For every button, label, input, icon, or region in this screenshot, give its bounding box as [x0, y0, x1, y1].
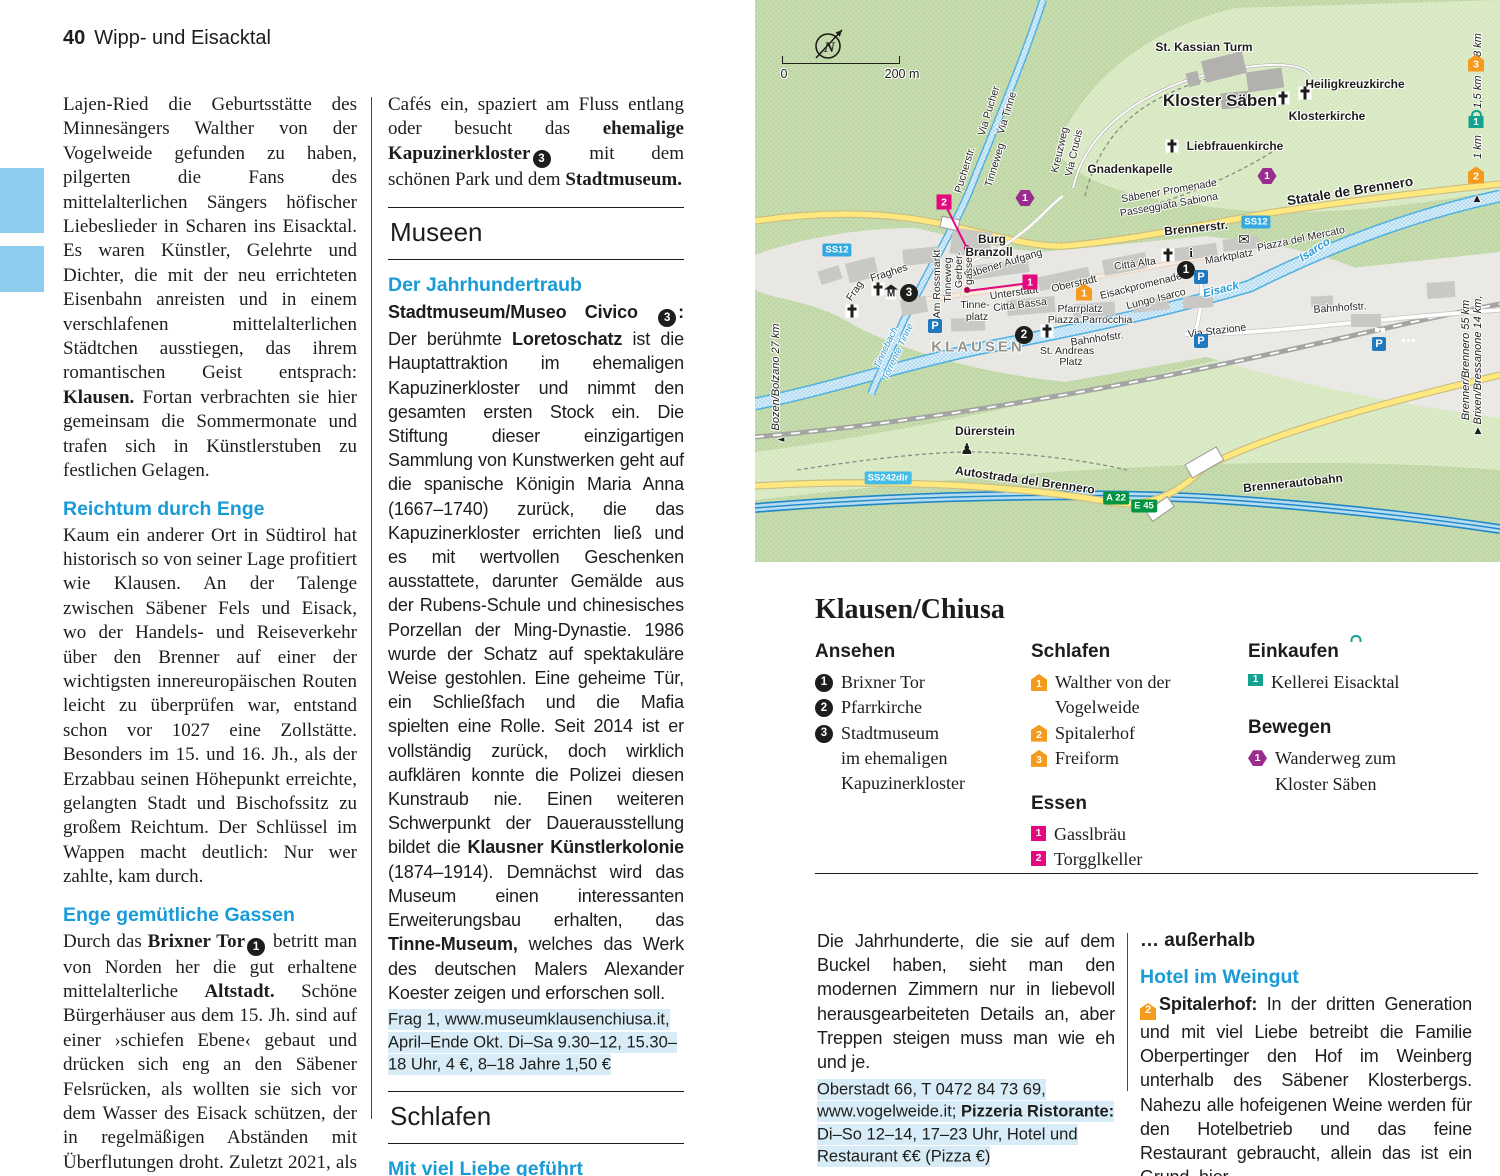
sight-marker-1: 1	[1177, 261, 1195, 279]
practical-info: Oberstadt 66, T 0472 84 73 69, www.vogel…	[817, 1078, 1115, 1168]
cross-icon	[872, 283, 885, 296]
page-number: 40	[63, 27, 85, 49]
restaurant-marker-2: 2	[937, 195, 952, 210]
paragraph: 2Spitalerhof: In der dritten Generation …	[1140, 992, 1472, 1176]
legend-title: Klausen/Chiusa	[815, 594, 1005, 626]
arrow-left-icon: ◄	[778, 435, 785, 445]
scale-distance-label: 200 m	[885, 67, 920, 81]
road-badge-SS242dir: SS242dir	[865, 472, 912, 485]
paragraph: Durch das Brixner Tor1 betritt man von N…	[63, 930, 357, 1176]
map-label: gasse	[963, 257, 975, 285]
map-label: Marktplatz	[1204, 247, 1254, 267]
map-label: Bahnhofstr.	[1313, 300, 1367, 316]
road-badge-E45: E 45	[1131, 500, 1157, 513]
town-map-klausen: N St. Kassian TurmKloster SäbenHeiligkre…	[755, 0, 1500, 562]
map-label: Tinneweg	[942, 257, 954, 302]
legend-item-label: Spitalerhof	[1055, 721, 1135, 746]
emphasis-text: Stadtmuseum.	[565, 169, 682, 190]
restaurant-marker-1: 1	[1031, 826, 1046, 841]
blue-subheading: Reichtum durch Enge	[63, 498, 357, 521]
practical-info: Frag 1, www.museumklausenchiusa.it, Apri…	[388, 1009, 684, 1077]
legend-item-label: Kellerei Eisacktal	[1271, 670, 1399, 695]
map-label: Bozen/Bolzano 27 km	[770, 323, 782, 430]
legend-section: Schlafen1Walther von derVogelweide2Spita…	[1031, 641, 1246, 771]
map-label: Tinne-	[960, 299, 989, 311]
scale-zero-label: 0	[781, 67, 788, 81]
article-column-left: Lajen-Ried die Geburtsstätte des Minnesä…	[63, 93, 357, 1176]
sight-badge-3: 3	[658, 309, 676, 327]
map-label: 1,5 km	[1472, 75, 1484, 108]
legend-section-header: Bewegen	[1248, 717, 1463, 739]
legend-item: 1Wanderweg zumKloster Säben	[1248, 746, 1463, 797]
legend-section: Bewegen1Wanderweg zumKloster Säben	[1248, 717, 1463, 797]
map-label: Città Alta	[1113, 255, 1156, 273]
guidebook-page: 40Wipp- und Eisacktal Lajen-Ried die Geb…	[0, 0, 1500, 1176]
emphasis-text: Brixner Tor	[148, 931, 245, 952]
sight-marker-2: 2	[1015, 326, 1033, 344]
legend-item: 1Kellerei Eisacktal	[1248, 670, 1463, 695]
legend-section: Einkaufen1Kellerei Eisacktal	[1248, 641, 1463, 695]
paragraph: Kaum ein anderer Ort in Südtirol hat his…	[63, 524, 357, 890]
emphasis-text: Spitalerhof:	[1159, 994, 1257, 1014]
map-label: KLAUSEN	[931, 339, 1025, 356]
blue-subheading: Der Jahrhundertraub	[388, 274, 684, 297]
map-label: St. Kassian Turm	[1155, 40, 1252, 54]
legend-item-label: Torgglkeller	[1054, 847, 1142, 872]
paragraph: Die Jahrhunderte, die sie auf dem Buckel…	[817, 929, 1115, 1074]
trail-marker-1: 1	[1248, 750, 1267, 766]
parking-marker-P: P	[1194, 270, 1208, 284]
legend-column-2: Einkaufen1Kellerei EisacktalBewegen1Wand…	[1248, 641, 1463, 819]
shop-marker-1: 1	[1248, 674, 1263, 686]
map-label: Liebfrauenkirche	[1187, 139, 1284, 153]
bottom-column-right: … außerhalbHotel im Weingut2Spitalerhof:…	[1140, 929, 1472, 1176]
section-heading: Museen	[388, 207, 684, 260]
parking-marker-P: P	[1372, 337, 1386, 351]
legend-item-label: Pfarrkirche	[841, 695, 922, 720]
blue-subheading: Enge gemütliche Gassen	[63, 904, 357, 927]
map-label: Brennerstr.	[1163, 218, 1228, 239]
map-label: Piazza Parrocchia	[1048, 314, 1133, 326]
legend-item-label: Wanderweg zumKloster Säben	[1275, 746, 1396, 797]
legend-item-label: Stadtmuseumim ehemaligenKapuzinerkloster	[841, 721, 965, 797]
map-label: Frag	[844, 279, 866, 304]
legend-item-label: Gasslbräu	[1054, 822, 1126, 847]
cross-icon	[846, 305, 859, 318]
arrow-up-icon: ▲	[1475, 426, 1482, 436]
legend-section-header: Essen	[1031, 793, 1246, 815]
sight-marker-1: 1	[815, 674, 833, 692]
column-divider	[371, 97, 372, 1119]
paragraph: Lajen-Ried die Geburtsstätte des Minnesä…	[63, 93, 357, 484]
bold-subheading: … außerhalb	[1140, 929, 1472, 952]
mail-icon: ✉	[1238, 232, 1250, 248]
section-heading: Schlafen	[388, 1091, 684, 1144]
emphasis-text: Stadtmuseum/Museo Civico	[388, 302, 656, 322]
body-text: Die Jahrhunderte, die sie auf dem Buckel…	[817, 931, 1115, 1072]
map-label: platz	[966, 311, 988, 323]
map-label: Heiligkreuzkirche	[1305, 77, 1404, 91]
parking-marker-P: P	[928, 319, 942, 333]
legend-section-header: Ansehen	[815, 641, 1030, 663]
body-text: Durch das	[63, 931, 148, 952]
cross-icon	[1162, 249, 1175, 262]
hotel-marker-3: 3	[1031, 750, 1047, 767]
trail-marker-1: 1	[1258, 168, 1277, 184]
paragraph: Stadtmuseum/Museo Civico 3: Der berühmte…	[388, 300, 684, 1005]
body-text: (1874–1914). Demnächst wird das Museum e…	[388, 862, 684, 930]
hotel-marker-2: 2	[1468, 167, 1484, 184]
legend-divider-rule	[815, 873, 1478, 874]
map-label: 8 km	[1472, 33, 1484, 57]
legend-item: 2Torgglkeller	[1031, 847, 1246, 872]
map-overlay: St. Kassian TurmKloster SäbenHeiligkreuz…	[755, 0, 1500, 562]
hotel-badge-2: 2	[1140, 1003, 1156, 1020]
emphasis-text: Tinne-Museum,	[388, 934, 518, 954]
legend-item: 1Walther von derVogelweide	[1031, 670, 1246, 721]
map-label: Piazza del Mercato	[1256, 224, 1346, 254]
page-header: 40Wipp- und Eisacktal	[63, 27, 271, 49]
legend-section: Ansehen1Brixner Tor2Pfarrkirche3Stadtmus…	[815, 641, 1030, 796]
chapter-tab-marker-2	[0, 246, 44, 292]
road-badge-A22: A 22	[1103, 492, 1129, 505]
map-label: Autostrada del Brennero	[954, 463, 1095, 496]
body-text: Der berühmte	[388, 329, 512, 349]
museum-icon: M	[884, 285, 898, 300]
blue-subheading: Hotel im Weingut	[1140, 966, 1472, 989]
monument-icon: ♟	[960, 440, 973, 458]
arrow-up-icon: ▲	[1474, 194, 1481, 204]
restaurant-marker-1: 1	[1023, 275, 1038, 290]
road-badge-SS12: SS12	[822, 244, 851, 257]
emphasis-text: Klausner Künstlerkolonie	[468, 837, 685, 857]
legend-section-header: Einkaufen	[1248, 641, 1463, 663]
bottom-column-divider	[1127, 933, 1128, 1091]
map-label: Burg	[978, 232, 1006, 246]
road-badge-SS12: SS12	[1241, 216, 1270, 229]
map-label: Klosterkirche	[1289, 109, 1366, 123]
restaurant-marker-2: 2	[1031, 851, 1046, 866]
legend-item-label: Brixner Tor	[841, 670, 925, 695]
chapter-title: Wipp- und Eisacktal	[94, 27, 271, 49]
map-label: 1 km	[1472, 135, 1484, 159]
body-text: Kaum ein anderer Ort in Südtirol hat his…	[63, 525, 357, 888]
legend-column-0: Ansehen1Brixner Tor2Pfarrkirche3Stadtmus…	[815, 641, 1030, 818]
map-label: Kloster Säben	[1163, 91, 1277, 111]
sight-marker-3: 3	[900, 284, 918, 302]
parking-marker-P: P	[1194, 334, 1208, 348]
legend-item: 2Pfarrkirche	[815, 695, 1030, 720]
blue-subheading: Mit viel Liebe geführt	[388, 1158, 684, 1176]
map-label: Brixen/Bressanone 14 km,	[1472, 295, 1484, 424]
map-label: Platz	[1059, 356, 1082, 368]
map-label: Gnadenkapelle	[1087, 162, 1172, 176]
trail-marker-1: 1	[1016, 190, 1035, 206]
sight-marker-2: 2	[815, 699, 833, 717]
map-label: Statale de Brennero	[1286, 174, 1414, 209]
map-label: Pucherstr.	[952, 146, 977, 195]
emphasis-text: :	[678, 302, 684, 322]
legend-item: 2Spitalerhof	[1031, 721, 1246, 746]
hotel-marker-1: 1	[1031, 674, 1047, 691]
map-label: Brennerautobahn	[1243, 471, 1344, 495]
chapter-tab-marker	[0, 168, 44, 233]
bottom-column-left: Die Jahrhunderte, die sie auf dem Buckel…	[817, 929, 1115, 1168]
legend-column-1: Schlafen1Walther von derVogelweide2Spita…	[1031, 641, 1246, 895]
legend-section: Essen1Gasslbräu2Torgglkeller	[1031, 793, 1246, 873]
body-text: In der dritten Generation und mit viel L…	[1140, 994, 1472, 1176]
map-label: Fraghes	[869, 261, 909, 284]
map-label: Tinneweg	[983, 142, 1008, 189]
body-text: ist die Hauptattraktion im ehemaligen Ka…	[388, 329, 684, 857]
map-label: Brenner/Brennero 55 km	[1460, 300, 1472, 420]
sight-badge-3: 3	[533, 150, 551, 168]
emphasis-text: Altstadt.	[204, 981, 274, 1002]
body-text: Schöne Bürgerhäuser aus dem 15. Jh. sind…	[63, 981, 357, 1176]
cross-icon	[1299, 87, 1312, 100]
paragraph: Cafés ein, spaziert am Fluss entlang ode…	[388, 93, 684, 192]
legend-item: 3Freiform	[1031, 746, 1246, 771]
body-text: Di–So 12–14, 17–23 Uhr, Hotel und Restau…	[817, 1125, 1078, 1166]
legend-item: 1Brixner Tor	[815, 670, 1030, 695]
legend-section-header: Schlafen	[1031, 641, 1246, 663]
sight-marker-3: 3	[815, 725, 833, 743]
map-scale-bar	[782, 56, 900, 64]
map-label: Dürerstein	[955, 424, 1015, 438]
body-text: Lajen-Ried die Geburtsstätte des Minnesä…	[63, 94, 357, 383]
legend-item: 3Stadtmuseumim ehemaligenKapuzinerkloste…	[815, 721, 1030, 797]
body-text: Frag 1, www.museumklausenchiusa.it, Apri…	[388, 1011, 677, 1074]
hotel-marker-2: 2	[1031, 725, 1047, 742]
legend-item: 1Gasslbräu	[1031, 822, 1246, 847]
emphasis-text: Klausen.	[63, 387, 134, 408]
legend-item-label: Walther von derVogelweide	[1055, 670, 1171, 721]
emphasis-text: Pizzeria Ristorante:	[961, 1103, 1114, 1121]
shop-marker-1: 1	[1469, 116, 1484, 128]
sight-badge-1: 1	[247, 938, 265, 956]
cross-icon	[1277, 92, 1290, 105]
cross-icon	[1041, 325, 1054, 338]
legend-item-label: Freiform	[1055, 746, 1119, 771]
article-column-middle: Cafés ein, spaziert am Fluss entlang ode…	[388, 93, 684, 1176]
info-icon: i	[1189, 245, 1193, 261]
cross-icon	[1166, 140, 1179, 153]
emphasis-text: Loretoschatz	[512, 329, 622, 349]
hotel-marker-3: 3	[1468, 55, 1484, 72]
